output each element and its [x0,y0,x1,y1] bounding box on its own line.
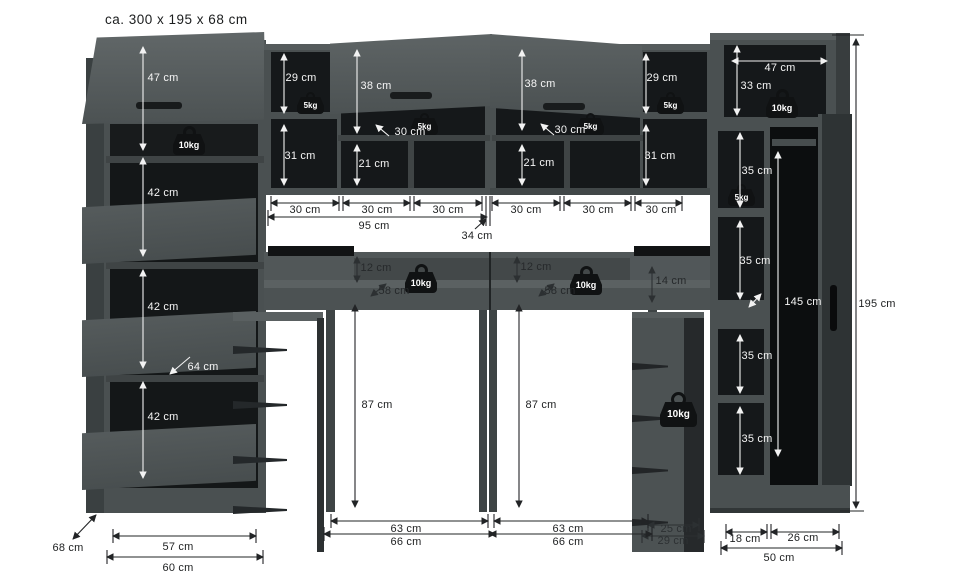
left-cabinet-shelf-2 [106,262,264,269]
dim-ul-small-cell: 21 cm [359,158,390,170]
dim-row-left-2: 30 cm [362,204,393,216]
dim-left-section-1: 42 cm [148,187,179,199]
dim-hanging-height: 145 cm [784,296,821,308]
dim-row-right-1: 30 cm [511,204,542,216]
left-cabinet-flap-handle [136,102,182,109]
dim-wardrobe-top-height: 33 cm [741,80,772,92]
dim-ur-shelf-diagonal: 30 cm [555,124,586,136]
dim-row-left-3: 30 cm [433,204,464,216]
upper-left-door-handle [390,92,432,99]
dim-left-section-2: 42 cm [148,301,179,313]
weight-5kg-icon: 5kg [297,92,324,114]
weight-label: 5kg [728,189,755,206]
dim-wardrobe-cell-4: 35 cm [742,433,773,445]
weight-10kg-icon: 10kg [766,89,798,118]
dim-right-box-height: 14 cm [656,275,687,287]
dim-left-diagonal: 64 cm [188,361,219,373]
dim-left-ledge: 12 cm [361,262,392,274]
left-pedestal-side [317,318,324,552]
upper-left-bottom-edge [264,188,490,195]
dim-right-opening-outer: 66 cm [553,536,584,548]
dim-ul-shelf-diagonal: 30 cm [395,126,426,138]
left-cabinet-shelf-1 [106,156,264,163]
dim-right-opening-inner: 63 cm [553,523,584,535]
dim-ped-inner: 25 cm [661,523,692,535]
dim-left-opening-outer: 66 cm [391,536,422,548]
left-desk-left-leg [326,310,335,512]
dim-ur-bottom-cell: 31 cm [645,150,676,162]
right-desk-left-leg [489,310,497,512]
left-magazine-flap-3 [82,424,256,490]
dim-row-right-2: 30 cm [583,204,614,216]
desk-center-seam [489,252,491,310]
dim-ul-bottom-cell: 31 cm [285,150,316,162]
dim-row-right-3: 30 cm [646,204,677,216]
upper-left-flap-door [330,34,492,114]
wardrobe-shelf-cell-3 [718,329,764,395]
dim-right-desk-diagonal: 58 cm [545,285,576,297]
dim-left-opening-inner: 63 cm [391,523,422,535]
dim-left-cab-outer: 60 cm [163,562,194,574]
dim-row-left-total: 95 cm [359,220,390,232]
dim-wardrobe-cell-1: 35 cm [742,165,773,177]
right-pedestal-body [632,318,690,552]
dim-left-cab-inner: 57 cm [163,541,194,553]
dim-total-height: 195 cm [858,298,895,310]
left-magazine-flap-2 [82,311,256,377]
left-magazine-flap-1 [82,198,256,264]
weight-10kg-icon: 10kg [405,264,437,293]
left-desk-surface-top [264,280,490,288]
weight-label: 5kg [297,97,324,114]
dim-left-desk-diagonal: 58 cm [379,285,410,297]
dim-ul-top-cell: 29 cm [286,72,317,84]
dim-wardrobe-hang-width: 26 cm [788,532,819,544]
weight-10kg-icon: 10kg [660,392,697,427]
dim-left-section-3: 42 cm [148,411,179,423]
dim-ur-small-cell: 21 cm [524,157,555,169]
wardrobe-door-handle [830,285,837,331]
weight-5kg-icon: 5kg [657,92,684,114]
dim-wardrobe-top-width: 47 cm [765,62,796,74]
wardrobe-base-shade [710,508,850,513]
upper-left-small-divider [408,141,414,188]
upper-right-small-divider [564,141,570,188]
dim-wardrobe-cell-3: 35 cm [742,350,773,362]
wardrobe-hanging-rail [772,139,816,146]
upper-right-bottom-edge [490,188,712,195]
furniture-dimension-diagram: ca. 300 x 195 x 68 cm [0,0,960,587]
dim-right-ledge: 12 cm [521,261,552,273]
weight-label: 10kg [173,134,205,155]
dim-ur-door-height: 38 cm [525,78,556,90]
dim-wardrobe-cell-2: 35 cm [740,255,771,267]
dim-ped-outer: 29 cm [658,535,689,547]
dim-ul-door-height: 38 cm [361,80,392,92]
dim-depth: 68 cm [53,542,84,554]
weight-10kg-icon: 10kg [173,126,205,155]
upper-right-door-handle [543,103,585,110]
weight-5kg-icon: 5kg [728,184,755,206]
wardrobe-top-edge [710,33,850,40]
dim-wardrobe-total-width: 50 cm [764,552,795,564]
overall-size-title: ca. 300 x 195 x 68 cm [105,12,248,27]
dim-center-gap: 34 cm [462,230,493,242]
left-desk-right-leg [479,310,487,512]
dim-left-flap-height: 47 cm [148,72,179,84]
dim-right-clearance: 87 cm [526,399,557,411]
dim-ur-top-cell: 29 cm [647,72,678,84]
weight-label: 5kg [657,97,684,114]
weight-label: 10kg [660,402,697,427]
weight-label: 10kg [405,272,437,293]
dim-wardrobe-shelf-width: 18 cm [730,533,761,545]
weight-label: 10kg [766,97,798,118]
wardrobe-top-side [836,33,850,127]
right-pedestal-side [684,318,704,552]
dim-left-clearance: 87 cm [362,399,393,411]
dim-row-left-1: 30 cm [290,204,321,216]
